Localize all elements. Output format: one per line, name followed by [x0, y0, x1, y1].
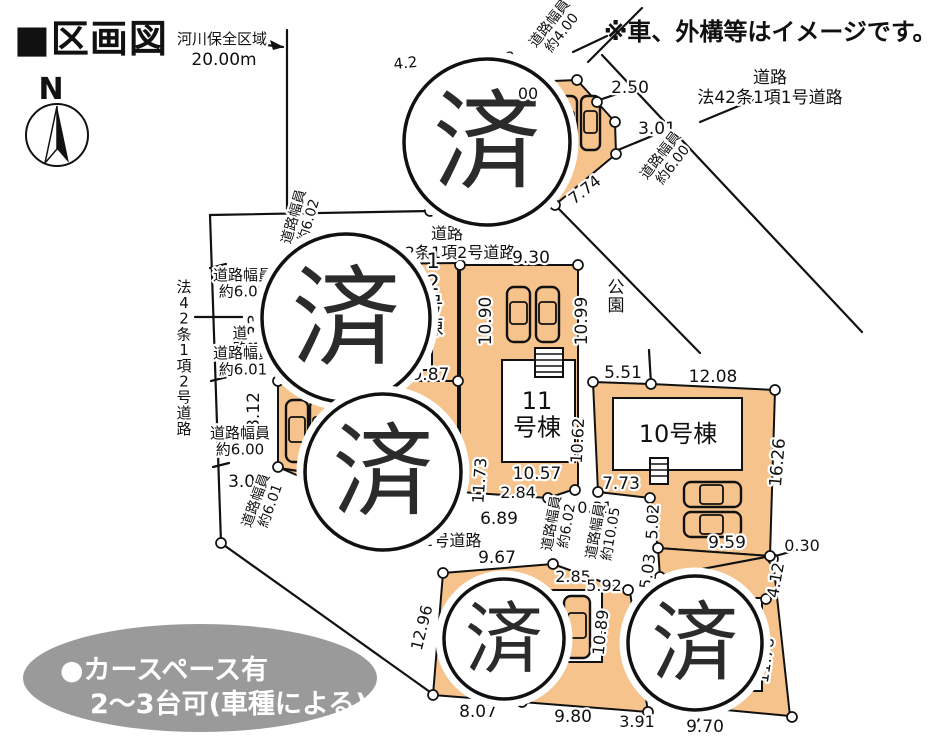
dim-16-26: 16.26 — [766, 437, 790, 487]
steps-lot-11 — [535, 348, 563, 377]
road1-label-1: 道路 — [753, 68, 787, 88]
river-arrowhead — [270, 40, 284, 50]
dim-9-67: 9.67 — [478, 548, 516, 568]
page-title: ■区画図 — [14, 8, 168, 63]
dim-0-30: 0.30 — [784, 536, 820, 555]
north-compass — [26, 104, 88, 166]
dim-9-30: 9.30 — [512, 248, 550, 268]
sold-stamp-text: 済 — [332, 413, 433, 531]
plot-map-svg: 河川保全区域20.00mN道路幅員約4.002.50道路法42条1項1号道路3.… — [0, 0, 951, 756]
dim-9-59: 9.59 — [708, 533, 746, 553]
disclaimer-note: ※車、外構等はイメージです。 — [604, 12, 936, 47]
dim-7-73: 7.73 — [602, 474, 640, 494]
dim-5-92: 5.92 — [586, 576, 622, 595]
dim-9-70: 9.70 — [686, 717, 724, 737]
steps-lot-10 — [650, 458, 668, 484]
corner-node — [573, 260, 583, 270]
corner-node — [646, 379, 656, 389]
corner-node — [623, 585, 633, 595]
legend-line1: ●カースペース有 — [60, 655, 268, 686]
corner-node — [570, 485, 580, 495]
dim-frag-4-2: 4.2 — [393, 53, 419, 73]
corner-node — [610, 117, 620, 127]
compass-needle-icon — [57, 106, 69, 163]
dim-3-91: 3.91 — [619, 712, 655, 731]
dim-5-51: 5.51 — [604, 363, 642, 383]
corner-node — [216, 538, 226, 548]
road-width-6-02-b: 道路幅員約6.02 — [539, 494, 580, 555]
dim-2-84: 2.84 — [500, 483, 536, 502]
sold-stamp-text: 済 — [652, 592, 739, 694]
corner-node — [273, 462, 283, 472]
plot-map-page: 河川保全区域20.00mN道路幅員約4.002.50道路法42条1項1号道路3.… — [0, 0, 951, 756]
sold-stamp: 済 — [301, 390, 465, 554]
corner-node — [453, 376, 463, 386]
boundary-line — [213, 463, 229, 467]
corner-node — [592, 97, 602, 107]
car-icon — [684, 482, 741, 507]
river-zone-label: 河川保全区域 — [177, 30, 267, 48]
legend-line2: 2～3台可(車種による) — [90, 688, 367, 720]
compass-needle-icon — [45, 106, 57, 163]
sold-stamp-text: 済 — [465, 595, 543, 685]
dim-6-89: 6.89 — [480, 509, 518, 529]
dim-frag-00: 00 — [518, 84, 538, 103]
dim-12-96: 12.96 — [407, 603, 437, 652]
dim-11-73: 11.73 — [468, 457, 490, 504]
road-width-6-00: 道路幅員約6.00 — [210, 424, 270, 459]
park-label: 公園 — [608, 278, 625, 316]
river-zone-length: 20.00m — [191, 50, 256, 70]
sold-stamp: 済 — [624, 572, 766, 714]
corner-node — [428, 690, 438, 700]
north-label: N — [38, 72, 63, 107]
car-icon — [536, 287, 559, 342]
road1-label-2: 法42条1項1号道路 — [697, 88, 842, 108]
corner-node — [770, 385, 780, 395]
corner-node — [572, 75, 582, 85]
dim-9-80: 9.80 — [554, 707, 592, 727]
corner-node — [645, 493, 655, 503]
dim-10-62: 10.62 — [567, 417, 588, 464]
dim-5-02: 5.02 — [642, 503, 663, 540]
dim-10-90: 10.90 — [476, 297, 496, 346]
road-law-vertical: 法42条1項2号道路 — [176, 278, 191, 438]
corner-node — [787, 712, 797, 722]
sold-stamp-text: 済 — [292, 255, 401, 382]
dim-2-50: 2.50 — [611, 78, 649, 98]
lot-label-10: 10号棟 — [639, 420, 718, 448]
sold-stamp: 済 — [440, 575, 568, 703]
dim-10-57: 10.57 — [513, 464, 562, 484]
sold-stamp: 済 — [258, 230, 434, 406]
corner-node — [588, 377, 598, 387]
dim-12-08: 12.08 — [689, 367, 738, 387]
car-icon — [507, 287, 530, 342]
corner-node — [653, 543, 663, 553]
corner-node — [438, 568, 448, 578]
sold-stamp: 済 — [400, 55, 574, 229]
corner-node — [611, 149, 621, 159]
corner-node — [765, 551, 775, 561]
dim-10-99: 10.99 — [572, 297, 592, 346]
